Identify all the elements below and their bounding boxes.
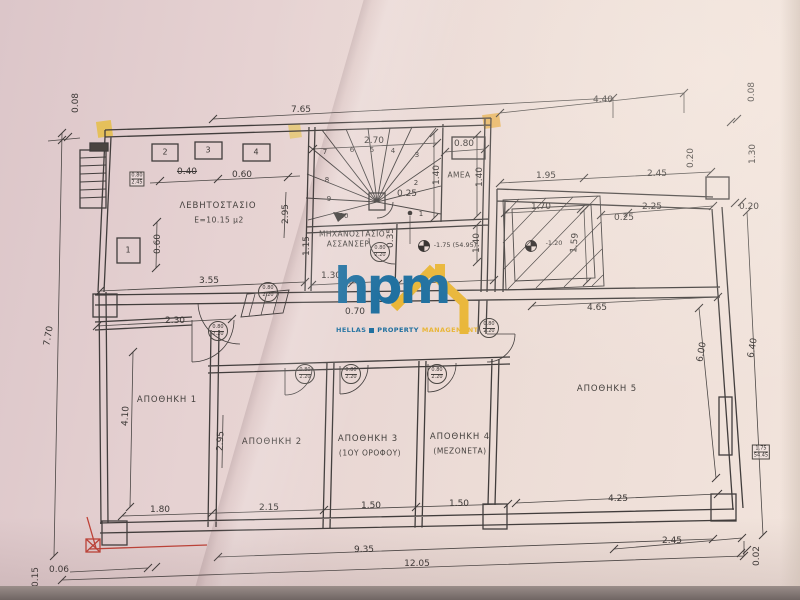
dimension-label: 1.80 (150, 505, 170, 515)
stair-step-number: 10 (340, 212, 349, 220)
dimension-label: 2.70 (364, 136, 384, 146)
room-label-amea: ΑΜΕΑ (447, 171, 470, 180)
room-label-assanser: ΑΣΣΑΝΣΕΡ (327, 240, 370, 249)
dimension-label: 0.25 (614, 213, 634, 223)
dimension-label: 0.80 (454, 139, 474, 149)
dimension-label: 2.95 (281, 204, 291, 224)
logo-wordmark: hpm (334, 264, 449, 309)
dimension-label: 0.20 (686, 148, 696, 168)
room-label-apothiki-1: ΑΠΟΘΗΚΗ 1 (137, 395, 197, 405)
room-label-apothiki-4: ΑΠΟΘΗΚΗ 4 (430, 432, 490, 442)
stair-step-number: 9 (327, 195, 331, 203)
dimension-label: 0.15 (31, 567, 41, 587)
dimension-label: 1.95 (536, 171, 556, 181)
dimension-label: 0.06 (49, 565, 69, 575)
room-label-apothiki-3: ΑΠΟΘΗΚΗ 3 (338, 434, 398, 444)
window-size-tag: 0.802.45 (129, 172, 144, 187)
dimension-label: 6.00 (695, 341, 708, 362)
dimension-label: 7.70 (42, 325, 55, 346)
dimension-label: 0.20 (739, 202, 759, 212)
door-size-tag: 0.802.20 (208, 321, 228, 341)
stair-step-number: 8 (325, 176, 329, 184)
dimension-label: 4.40 (593, 95, 613, 105)
opening-number: 2 (162, 148, 167, 157)
room-label-mixanostasio: ΜΗΧΑΝΟΣΤΑΣΙΟ (319, 230, 385, 239)
stair-step-number: 4 (391, 147, 395, 155)
door-size-tag: 0.802.20 (341, 364, 361, 384)
hpm-logo: hpm HELLAS PROPERTY MANAGEMENT (334, 262, 474, 346)
dimension-label: 2.95 (215, 431, 226, 452)
room-sub-apothiki-3: (1ΟΥ ΟΡΟΦΟΥ) (339, 449, 401, 458)
opening-number: 4 (253, 148, 258, 157)
dimension-label: 2.30 (165, 316, 185, 326)
logo-sub-hellas: HELLAS (336, 326, 366, 334)
dimension-label: 1.40 (475, 167, 485, 187)
opening-number: 1 (125, 246, 130, 255)
table-surface (0, 586, 800, 600)
dimension-label: 9.35 (354, 545, 374, 555)
stair-step-number: 6 (350, 146, 354, 154)
dimension-label: 2.45 (662, 536, 682, 546)
dimension-label: 1.15 (302, 236, 312, 256)
room-label-apothiki-5: ΑΠΟΘΗΚΗ 5 (577, 384, 637, 394)
dimension-label: 4.10 (120, 406, 131, 427)
dimension-label: 1.50 (361, 501, 381, 511)
opening-number: 3 (205, 146, 210, 155)
dimension-label: 0.60 (153, 234, 163, 254)
stair-step-number: 3 (415, 151, 419, 159)
logo-sub-property: PROPERTY (377, 326, 419, 334)
dimension-label: 0.08 (71, 93, 81, 113)
dimension-label: 1.30 (748, 144, 758, 164)
logo-square (369, 328, 374, 333)
level-marker-label: -1.75 (54.95) (434, 241, 477, 249)
level-marker-label: -1.20 (546, 239, 563, 247)
stair-step-number: 1 (419, 210, 423, 218)
dimension-label: 0.40 (177, 167, 197, 177)
dimension-label: 0.08 (747, 82, 757, 102)
logo-sub-management: MANAGEMENT (422, 326, 479, 334)
dimension-label: 0.60 (232, 170, 252, 180)
room-label-apothiki-2: ΑΠΟΘΗΚΗ 2 (242, 437, 302, 447)
stair-step-number: 7 (323, 148, 327, 156)
dimension-label: 0.02 (752, 546, 762, 566)
dimension-label: 4.65 (587, 303, 607, 313)
dimension-label: 3.55 (199, 276, 219, 286)
dimension-label: 1.70 (531, 202, 551, 212)
logo-subtitle: HELLAS PROPERTY MANAGEMENT (336, 326, 478, 334)
plan-photo-paper: 0.087.654.400.081.300.201.952.450.202.25… (0, 0, 800, 588)
stair-step-number: 5 (370, 146, 374, 154)
door-size-tag: 0.802.20 (479, 318, 499, 338)
dimension-label: 12.05 (404, 559, 430, 569)
dimension-label: 2.45 (647, 169, 667, 179)
dimension-label: 1.40 (432, 165, 442, 185)
dimension-label: 1.59 (569, 233, 581, 254)
dimension-label: 1.50 (449, 499, 469, 509)
room-area-levitostasio: Ε=10.15 μ2 (194, 216, 243, 225)
door-size-tag: 0.802.20 (295, 364, 315, 384)
room-sub-apothiki-4: (ΜΕΖΟΝΕΤΑ) (433, 447, 486, 456)
dimension-label: 2.15 (259, 503, 279, 513)
dimension-label: 4.25 (608, 494, 628, 504)
door-size-tag: 0.802.20 (427, 364, 447, 384)
door-size-tag: 0.802.20 (258, 282, 278, 302)
dimension-label: 6.40 (746, 337, 759, 358)
dimension-label: 7.65 (291, 105, 311, 115)
dimension-label: 2.25 (642, 202, 662, 212)
dimension-label: 0.25 (397, 189, 417, 199)
room-label-levitostasio: ΛΕΒΗΤΟΣΤΑΣΙΟ (179, 201, 256, 211)
stair-step-number: 2 (414, 179, 418, 187)
window-size-tag: 1.7554.45 (752, 445, 770, 460)
